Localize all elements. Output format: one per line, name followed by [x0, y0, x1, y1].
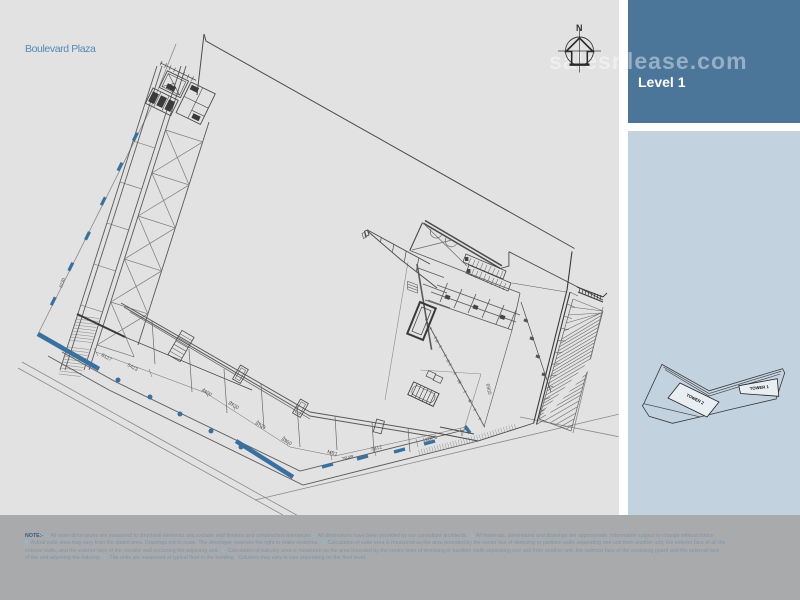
svg-text:8127: 8127: [100, 352, 113, 363]
svg-text:6230: 6230: [58, 277, 66, 289]
svg-text:8350: 8350: [280, 437, 293, 448]
svg-text:8730: 8730: [227, 401, 240, 412]
svg-text:8725: 8725: [254, 421, 267, 432]
svg-text:7B12: 7B12: [370, 444, 383, 453]
svg-text:MB1: MB1: [326, 449, 338, 458]
svg-text:6900: 6900: [484, 383, 492, 395]
svg-text:4400: 4400: [200, 388, 213, 399]
svg-text:7B4B: 7B4B: [341, 454, 355, 463]
svg-text:5423: 5423: [126, 362, 139, 373]
